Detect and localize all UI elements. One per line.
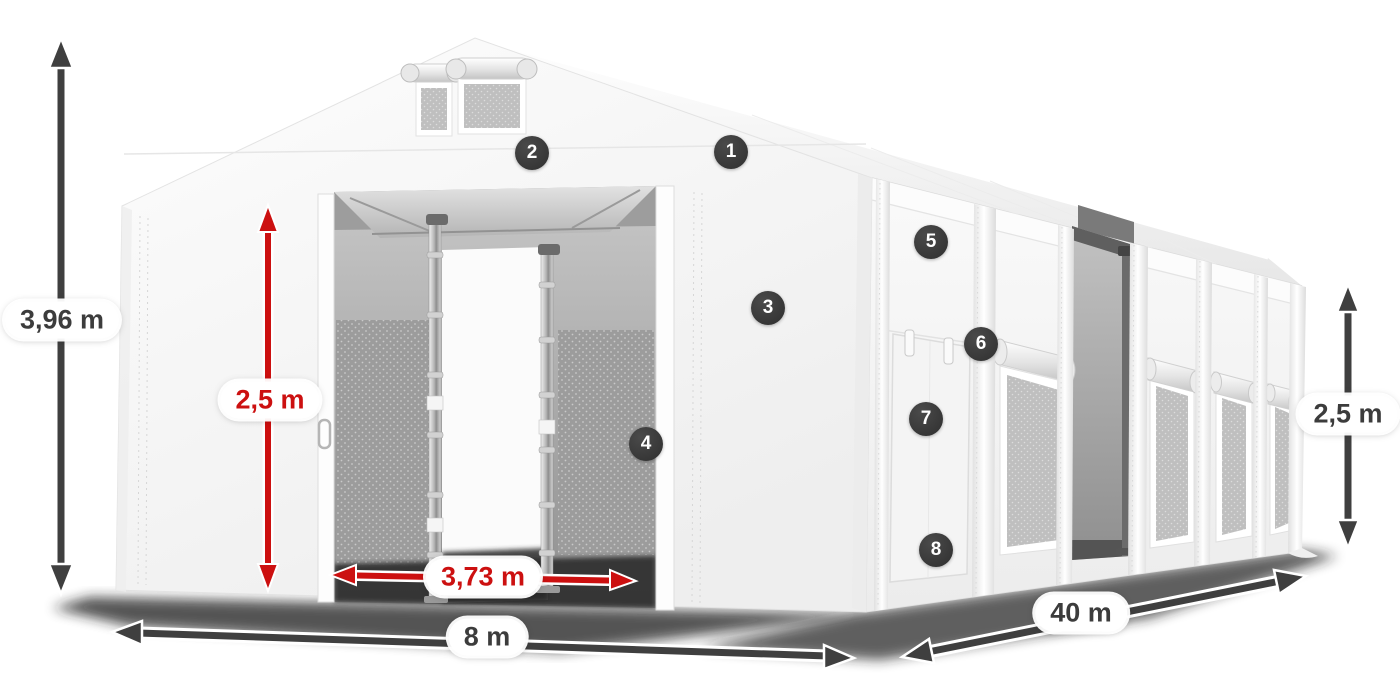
side-height-label: 2,5 m	[1298, 396, 1397, 433]
callout-2: 2	[515, 136, 549, 170]
interior-mesh-left	[336, 320, 432, 565]
side-doorway-open	[1072, 226, 1134, 560]
callout-3: 3	[751, 291, 785, 325]
door-width-label: 3,73 m	[426, 559, 540, 596]
door-strap-hanger	[905, 330, 914, 356]
length-label: 40 m	[1035, 595, 1127, 632]
callout-4: 4	[629, 427, 663, 461]
gable-vent-2	[446, 58, 537, 134]
door-strap-hanger	[944, 338, 953, 364]
total-height-label: 3,96 m	[5, 302, 119, 339]
callout-1: 1	[714, 135, 748, 169]
tent-product-illustration: 3,96 m 2,5 m 3,73 m 8 m 40 m 2,5 m 1 2 3…	[0, 0, 1400, 700]
callout-8: 8	[919, 533, 953, 567]
callout-6: 6	[964, 327, 998, 361]
side-window-3	[1211, 372, 1260, 542]
callout-5: 5	[914, 225, 948, 259]
callout-7: 7	[909, 402, 943, 436]
front-width-label: 8 m	[449, 619, 526, 656]
side-window-2	[1144, 358, 1202, 548]
front-door-opening	[334, 186, 656, 608]
door-height-label: 2,5 m	[220, 382, 319, 419]
tent-drawing	[0, 0, 1400, 700]
